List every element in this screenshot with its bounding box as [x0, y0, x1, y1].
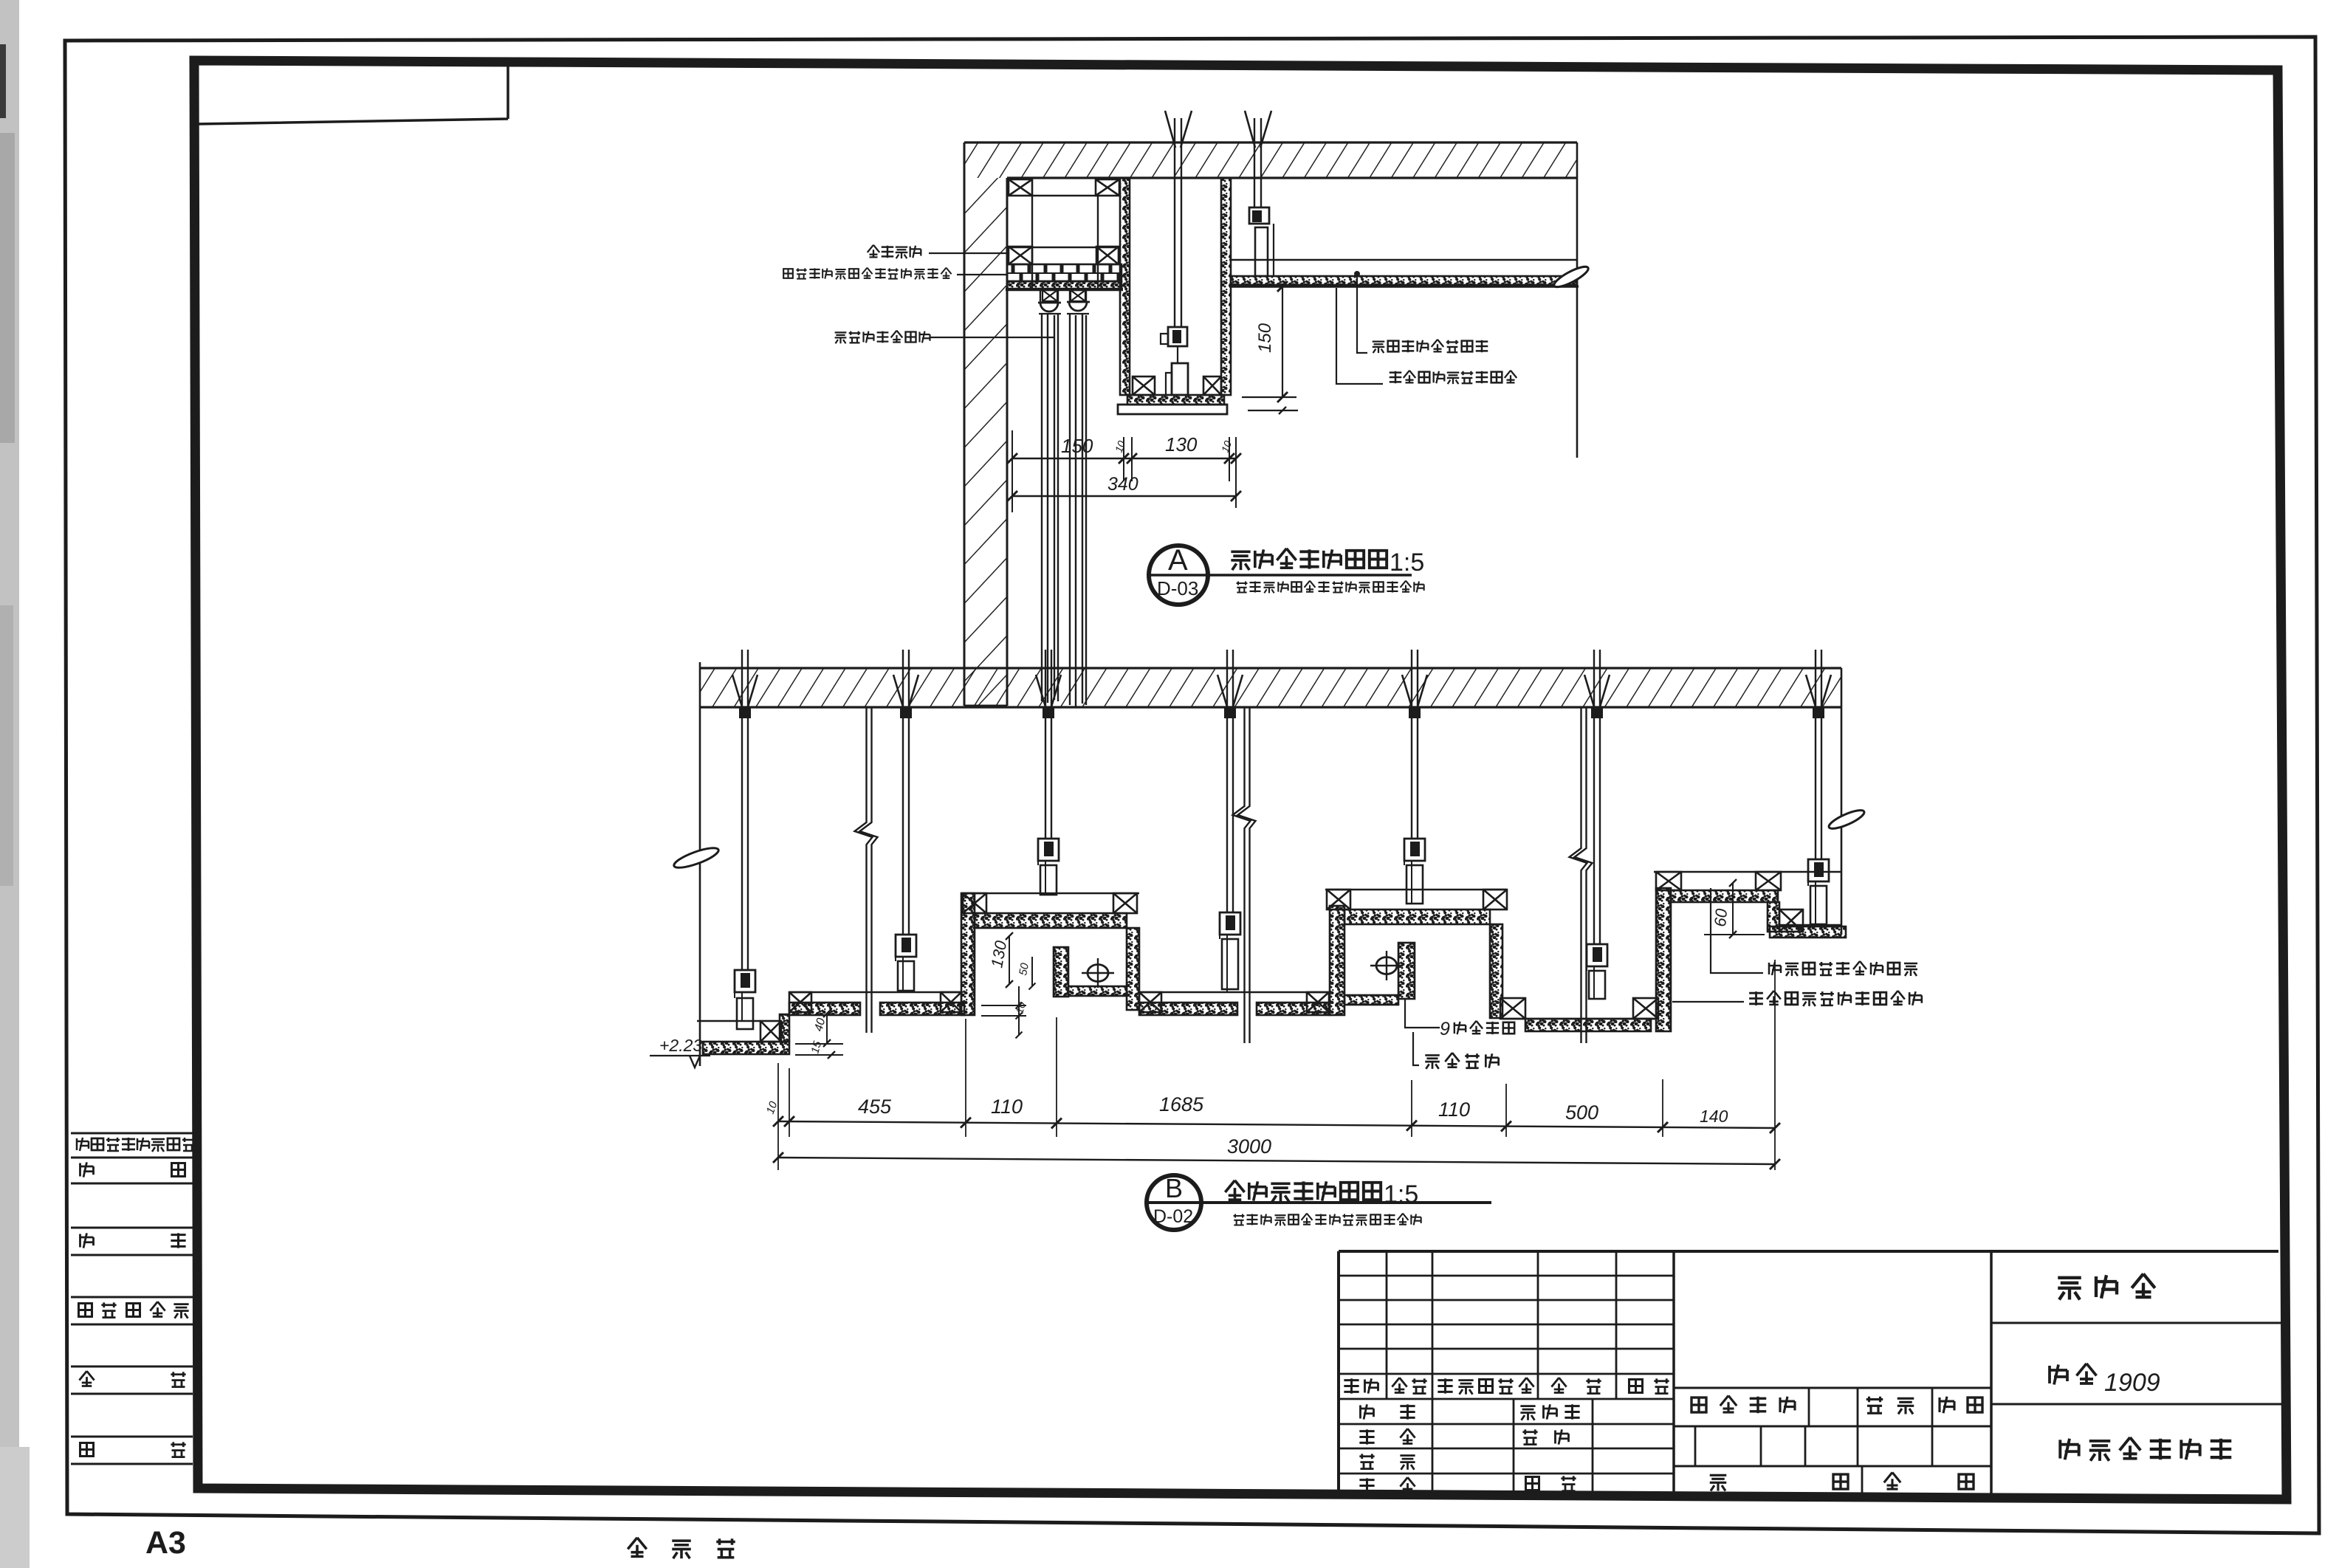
svg-text:150: 150 — [1255, 323, 1275, 353]
svg-text:1685: 1685 — [1159, 1093, 1204, 1115]
svg-text:1:5: 1:5 — [1384, 1180, 1418, 1208]
svg-text:150: 150 — [1061, 435, 1093, 457]
svg-text:3000: 3000 — [1227, 1135, 1271, 1158]
svg-text:140: 140 — [1700, 1107, 1728, 1126]
svg-text:130: 130 — [1165, 433, 1198, 455]
svg-text:B: B — [1165, 1173, 1183, 1203]
svg-text:A3: A3 — [145, 1525, 186, 1561]
svg-text:+2.23: +2.23 — [659, 1036, 702, 1055]
svg-text:500: 500 — [1565, 1101, 1598, 1124]
svg-text:455: 455 — [858, 1096, 892, 1118]
svg-text:D-02: D-02 — [1153, 1206, 1193, 1227]
svg-text:1:5: 1:5 — [1390, 549, 1424, 577]
svg-text:A: A — [1168, 544, 1188, 577]
svg-text:60: 60 — [1711, 907, 1731, 927]
svg-text:9: 9 — [1440, 1019, 1450, 1039]
svg-text:340: 340 — [1107, 474, 1138, 495]
svg-text:110: 110 — [1438, 1098, 1470, 1121]
svg-text:1909: 1909 — [2104, 1369, 2160, 1397]
svg-text:110: 110 — [991, 1096, 1023, 1118]
svg-text:D-03: D-03 — [1157, 577, 1198, 599]
